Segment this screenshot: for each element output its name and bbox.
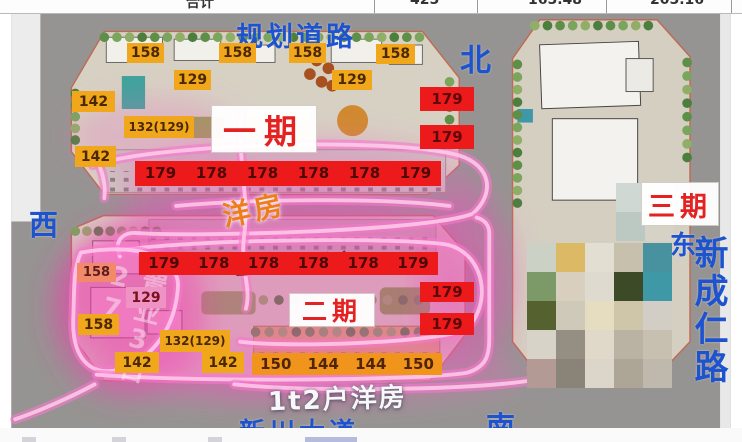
annotation-layer: 规划道路 北 西 南 东 新川大道 新成仁路 一期 二期 三期 洋房 2t2户 … (0, 0, 742, 442)
table-separator (477, 0, 478, 13)
compass-west: 西 (29, 202, 58, 244)
price-label-red: 179 (420, 87, 474, 111)
phase3-label: 三期 (642, 183, 718, 225)
price-label-yellow: 129 (126, 287, 166, 308)
price-label-yellow: 129 (174, 70, 211, 90)
annotation-1t2: 1t2户洋房 (267, 377, 407, 419)
cropped-bottom-strip (0, 428, 742, 442)
price-label-yellow: 158 (219, 43, 256, 63)
price-label-yellow: 158 (77, 263, 116, 282)
price-band: 179178178178178179 (135, 161, 441, 186)
cropped-glyph (305, 437, 357, 442)
band-value: 178 (349, 166, 380, 181)
table-cell-partial: 205.16 (650, 0, 704, 8)
cropped-glyph (112, 437, 126, 442)
price-label-yellow: 158 (376, 44, 415, 64)
band-value: 150 (260, 357, 291, 372)
price-label-yellow: 158 (78, 314, 119, 335)
band-value: 178 (196, 166, 227, 181)
price-label-yellow: 129 (332, 70, 372, 90)
price-band: 150144144150 (252, 353, 442, 375)
price-label-yellow: 142 (115, 352, 159, 373)
site-plan-screenshot: 规划道路 北 西 南 东 新川大道 新成仁路 一期 二期 三期 洋房 2t2户 … (0, 0, 742, 442)
price-label-yellow: 158 (289, 43, 326, 63)
price-label-yellow: 142 (72, 91, 115, 112)
price-label-yellow: 132(129) (124, 116, 194, 138)
band-value: 178 (298, 256, 329, 271)
price-band: 179178178178178179 (139, 252, 438, 275)
price-label-yellow: 158 (127, 43, 164, 63)
table-separator (731, 0, 732, 13)
band-value: 178 (298, 166, 329, 181)
table-cell-partial: 425 (410, 0, 439, 8)
road-label-right: 新成仁路 (684, 235, 733, 387)
band-value: 179 (148, 256, 179, 271)
phase2-label: 二期 (290, 294, 374, 326)
table-separator (374, 0, 375, 13)
cropped-table-strip: 合计425165.48205.16 (0, 0, 742, 14)
band-value: 179 (397, 256, 428, 271)
band-value: 178 (348, 256, 379, 271)
table-cell-partial: 165.48 (528, 0, 582, 8)
band-value: 178 (247, 166, 278, 181)
price-label-red: 179 (420, 125, 474, 149)
phase1-label: 一期 (212, 106, 316, 152)
band-value: 179 (400, 166, 431, 181)
price-label-red: 179 (420, 282, 474, 302)
price-label-yellow: 142 (202, 352, 244, 373)
cropped-glyph (208, 437, 222, 442)
price-label-yellow: 132(129) (160, 330, 230, 352)
band-value: 178 (198, 256, 229, 271)
band-value: 179 (145, 166, 176, 181)
band-value: 144 (355, 357, 386, 372)
band-value: 150 (403, 357, 434, 372)
annotation-yangfang: 洋房 (219, 183, 290, 235)
table-separator (606, 0, 607, 13)
band-value: 144 (308, 357, 339, 372)
price-label-red: 179 (420, 313, 474, 335)
price-label-yellow: 142 (75, 146, 116, 167)
compass-north: 北 (460, 35, 491, 80)
band-value: 178 (248, 256, 279, 271)
cropped-glyph (22, 437, 36, 442)
table-cell-partial: 合计 (186, 0, 214, 12)
